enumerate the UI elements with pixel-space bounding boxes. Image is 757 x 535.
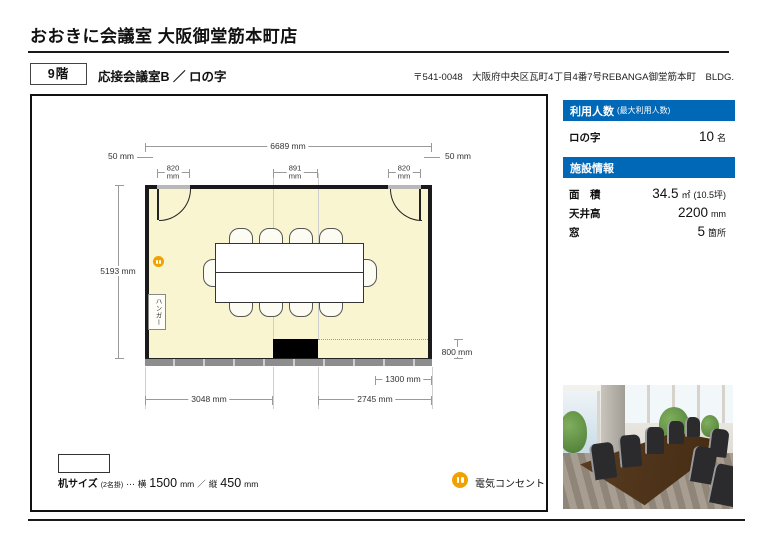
dim-bottom-left-label: 3048 mm: [188, 394, 229, 404]
dim-gap-left-label: 50 mm: [105, 151, 137, 161]
leader-line: [424, 157, 440, 158]
dim-pillar-width-label: 891mm: [287, 165, 304, 180]
address: 〒541-0048 大阪府中央区瓦町4丁目4番7号REBANGA御堂筋本町 BL…: [413, 69, 734, 83]
meeting-table: [215, 243, 364, 303]
dim-bottom-right-label: 2745 mm: [354, 394, 395, 404]
outlet-marker: [153, 256, 164, 267]
photo-plant: [563, 411, 587, 453]
floor-badge: 9階: [30, 63, 87, 85]
outlet-icon: [452, 472, 468, 488]
room-name: 応接会議室B ／ ロの字: [98, 66, 226, 85]
hanger-box: ハンガー: [148, 294, 166, 330]
photo-chair: [645, 427, 664, 454]
pillar-extension-line: [318, 339, 432, 340]
photo-chair: [618, 434, 643, 468]
floorplan-panel: ハンガー 6689 mm 50 mm 50 mm 820mm 891mm 820…: [30, 94, 548, 512]
facility-row-ceiling: 天井高 2200 mm: [563, 205, 735, 221]
photo-chair: [589, 442, 618, 481]
wall-right: [428, 185, 432, 359]
table-divider: [216, 272, 363, 273]
dim-door-left-label: 820mm: [165, 165, 182, 180]
desk-symbol: [58, 454, 110, 473]
wall-left: [145, 185, 149, 359]
dim-pillar-depth-label: 800 mm: [439, 347, 476, 357]
title-divider: [28, 51, 729, 53]
capacity-header: 利用人数 (最大利用人数): [563, 100, 735, 121]
pillar: [273, 339, 318, 359]
ref-line: [273, 367, 274, 409]
outlet-legend-label: 電気コンセント: [475, 475, 545, 490]
dim-room-depth-label: 5193 mm: [97, 266, 138, 276]
room-photo: [563, 385, 733, 509]
capacity-row: ロの字 10 名: [563, 129, 735, 145]
facility-header: 施設情報: [563, 157, 735, 178]
page-title: おおきに会議室 大阪御堂筋本町店: [30, 22, 298, 47]
facility-row-area: 面 積 34.5 ㎡ (10.5坪): [563, 186, 735, 202]
dim-window-right-label: 1300 mm: [382, 374, 423, 384]
facility-row-windows: 窓 5 箇所: [563, 224, 735, 240]
dim-gap-right-label: 50 mm: [442, 151, 474, 161]
wall-segment: [190, 185, 388, 189]
footer-divider: [28, 519, 745, 521]
photo-chair: [667, 421, 684, 444]
photo-chair: [685, 417, 700, 437]
desk-size-caption: 机サイズ(2名掛)⋯横1500mm／縦450mm: [58, 475, 258, 490]
dim-total-width-label: 6689 mm: [267, 141, 308, 151]
facility-sheet: おおきに会議室 大阪御堂筋本町店 9階 応接会議室B ／ ロの字 〒541-00…: [0, 0, 757, 535]
leader-line: [137, 157, 153, 158]
window-wall: [145, 358, 432, 366]
ref-line: [432, 367, 433, 409]
dim-door-right-label: 820mm: [396, 165, 413, 180]
